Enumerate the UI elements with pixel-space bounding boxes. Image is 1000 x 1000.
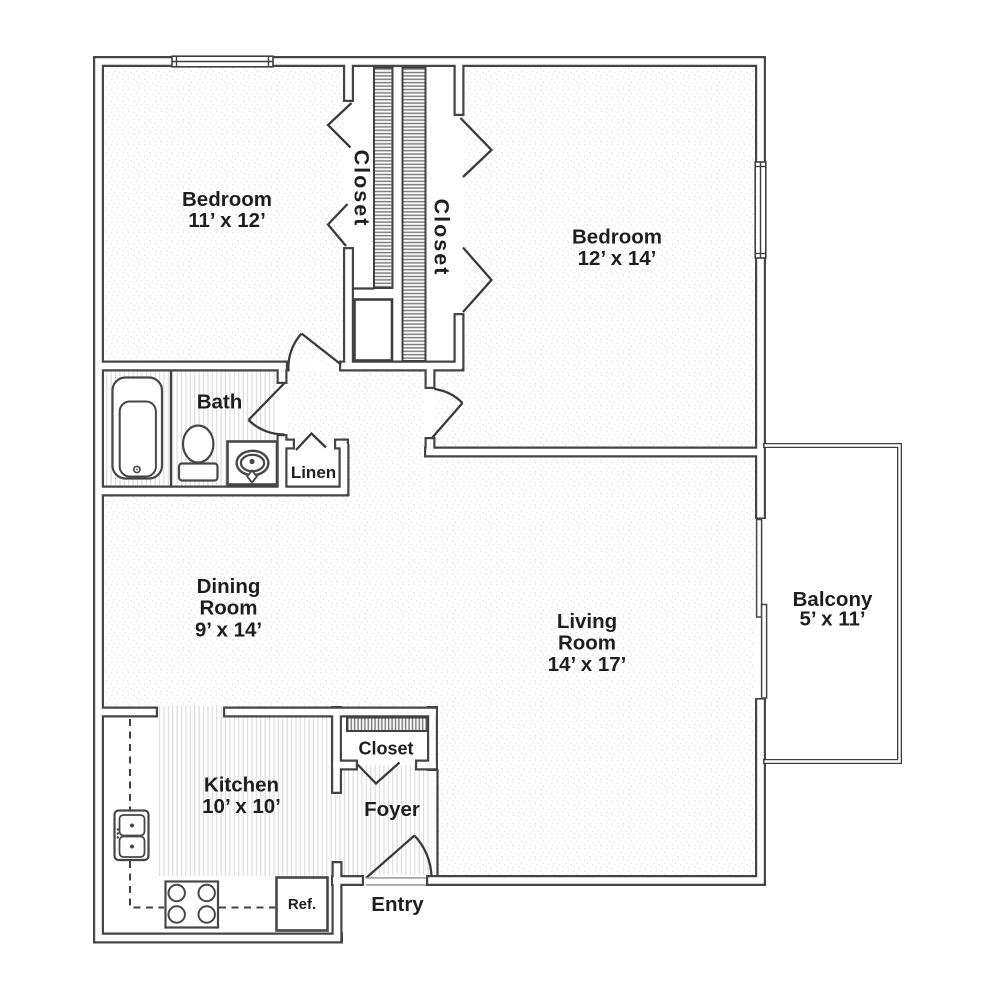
svg-text:Closet: Closet xyxy=(350,150,374,228)
svg-text:Room: Room xyxy=(199,597,257,620)
svg-text:Kitchen: Kitchen xyxy=(204,774,279,797)
svg-text:12’ x 14’: 12’ x 14’ xyxy=(578,247,657,270)
svg-text:Closet: Closet xyxy=(358,739,413,759)
svg-text:11’ x 12’: 11’ x 12’ xyxy=(188,209,266,232)
svg-text:Dining: Dining xyxy=(197,575,261,598)
svg-text:Ref.: Ref. xyxy=(288,896,316,913)
svg-text:Bedroom: Bedroom xyxy=(572,226,662,249)
svg-text:Room: Room xyxy=(558,632,616,655)
svg-text:Living: Living xyxy=(557,610,617,633)
svg-text:10’ x 10’: 10’ x 10’ xyxy=(202,795,281,818)
svg-text:Linen: Linen xyxy=(291,463,336,482)
svg-text:Foyer: Foyer xyxy=(364,798,420,821)
svg-text:Closet: Closet xyxy=(430,199,454,277)
svg-text:14’ x 17’: 14’ x 17’ xyxy=(548,653,627,676)
svg-text:5’ x 11’: 5’ x 11’ xyxy=(799,608,865,631)
svg-text:Bath: Bath xyxy=(197,391,243,414)
svg-text:Bedroom: Bedroom xyxy=(182,188,272,211)
svg-text:Entry: Entry xyxy=(371,893,424,916)
svg-text:9’ x 14’: 9’ x 14’ xyxy=(195,619,262,642)
